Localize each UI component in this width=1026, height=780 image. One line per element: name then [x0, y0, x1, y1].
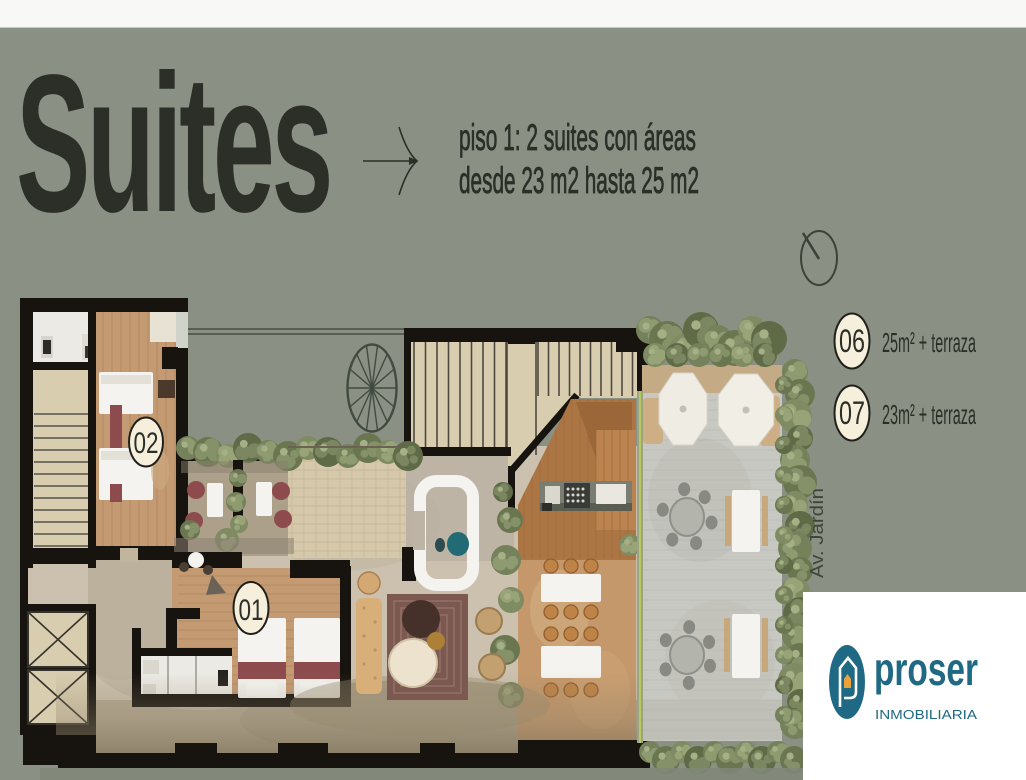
svg-text:23m² + terraza: 23m² + terraza	[882, 399, 976, 430]
svg-text:02: 02	[134, 427, 159, 460]
svg-text:01: 01	[239, 594, 264, 627]
svg-text:desde 23 m2 hasta 25 m2: desde 23 m2 hasta 25 m2	[459, 160, 699, 201]
svg-text:06: 06	[839, 323, 865, 359]
svg-text:07: 07	[839, 395, 865, 431]
svg-text:Suites: Suites	[16, 34, 330, 253]
svg-text:INMOBILIARIA: INMOBILIARIA	[875, 707, 977, 722]
svg-text:piso 1: 2 suites con áreas: piso 1: 2 suites con áreas	[459, 117, 696, 158]
svg-text:25m² + terraza: 25m² + terraza	[882, 327, 976, 358]
svg-text:Av. Jardín: Av. Jardín	[807, 488, 827, 578]
svg-text:proser: proser	[874, 643, 978, 695]
